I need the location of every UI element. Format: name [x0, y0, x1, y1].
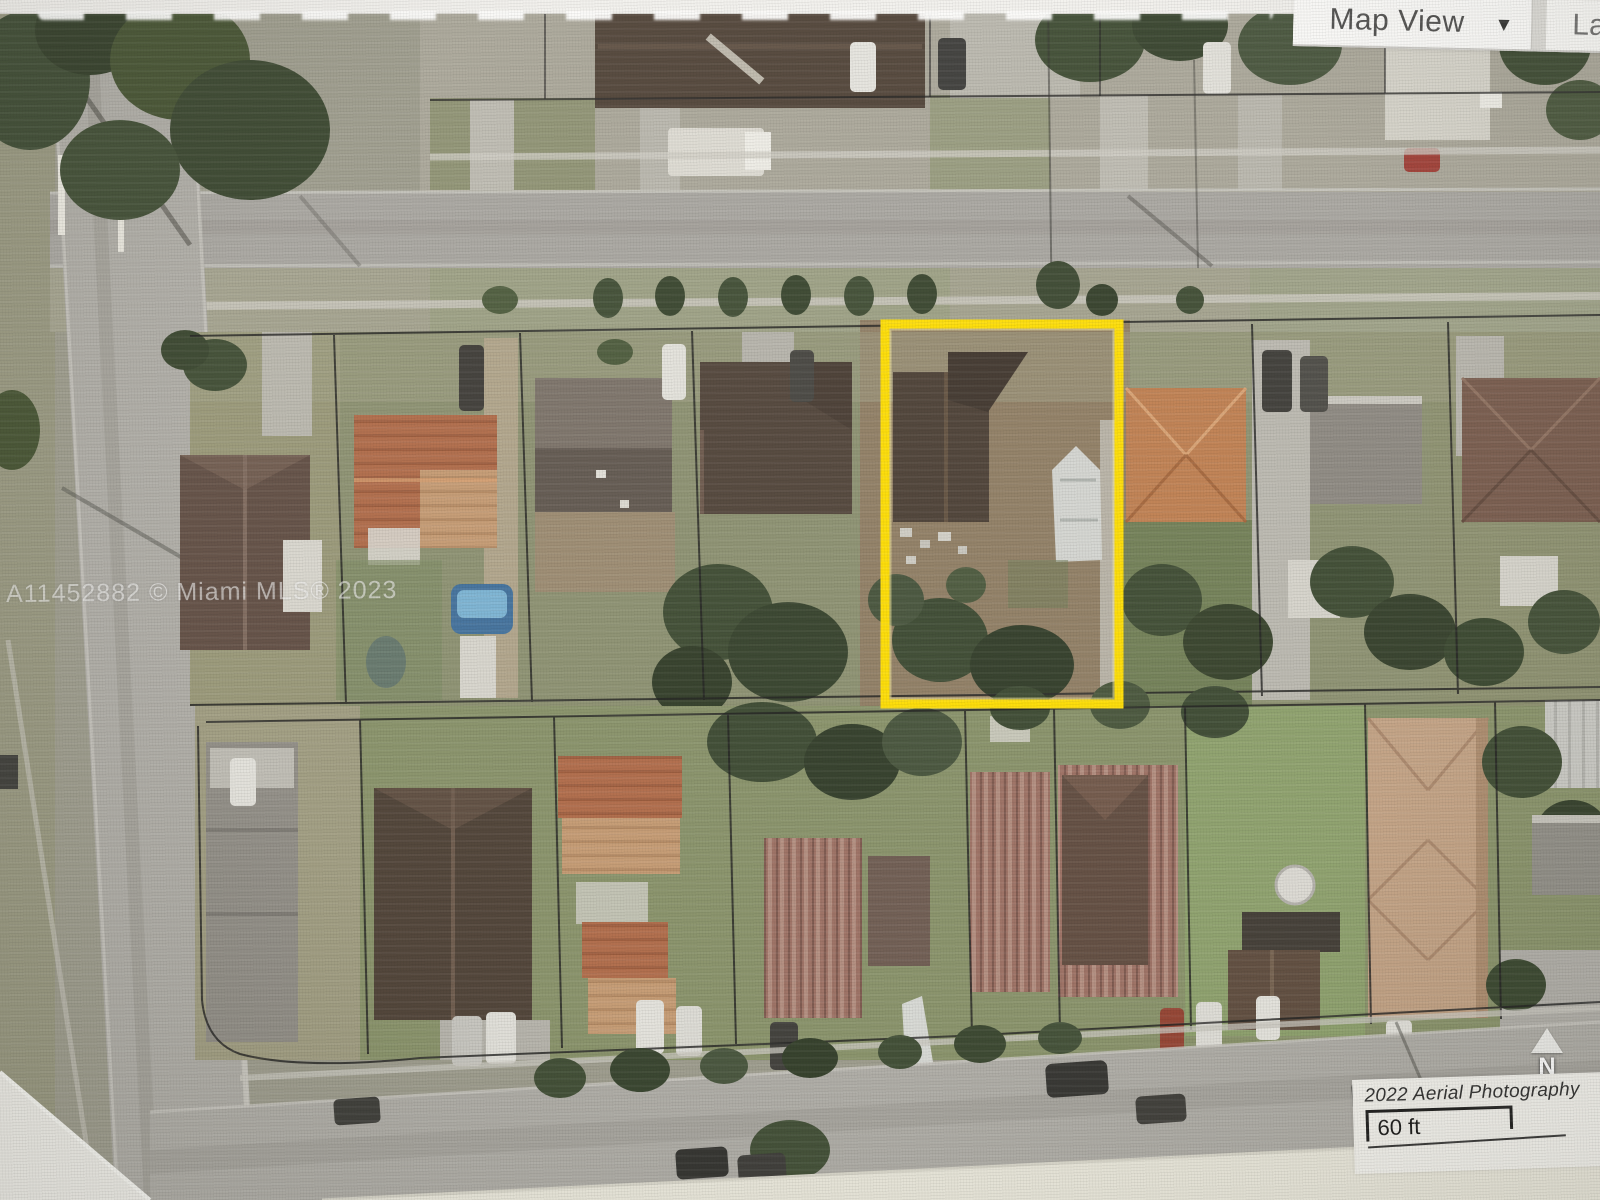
- clipped-page-top: [38, 11, 1273, 20]
- screen: Map View ▼ La A11452882 © Miami MLS® 202…: [0, 0, 1600, 1200]
- map-view-dropdown[interactable]: Map View ▼: [1293, 0, 1532, 49]
- layers-button-partial[interactable]: La: [1546, 8, 1600, 43]
- toolbar-divider: [1531, 0, 1547, 50]
- chevron-down-icon: ▼: [1494, 11, 1513, 37]
- north-arrow-icon: [1531, 1028, 1563, 1053]
- map-view-label: Map View: [1329, 3, 1465, 40]
- round-tank: [1276, 866, 1314, 904]
- mls-watermark: A11452882 © Miami MLS® 2023: [6, 576, 398, 609]
- map-toolbar: Map View ▼ La: [1293, 0, 1600, 53]
- scale-panel: 2022 Aerial Photography 60 ft: [1352, 1072, 1600, 1174]
- scale-distance-label: 60 ft: [1377, 1114, 1421, 1141]
